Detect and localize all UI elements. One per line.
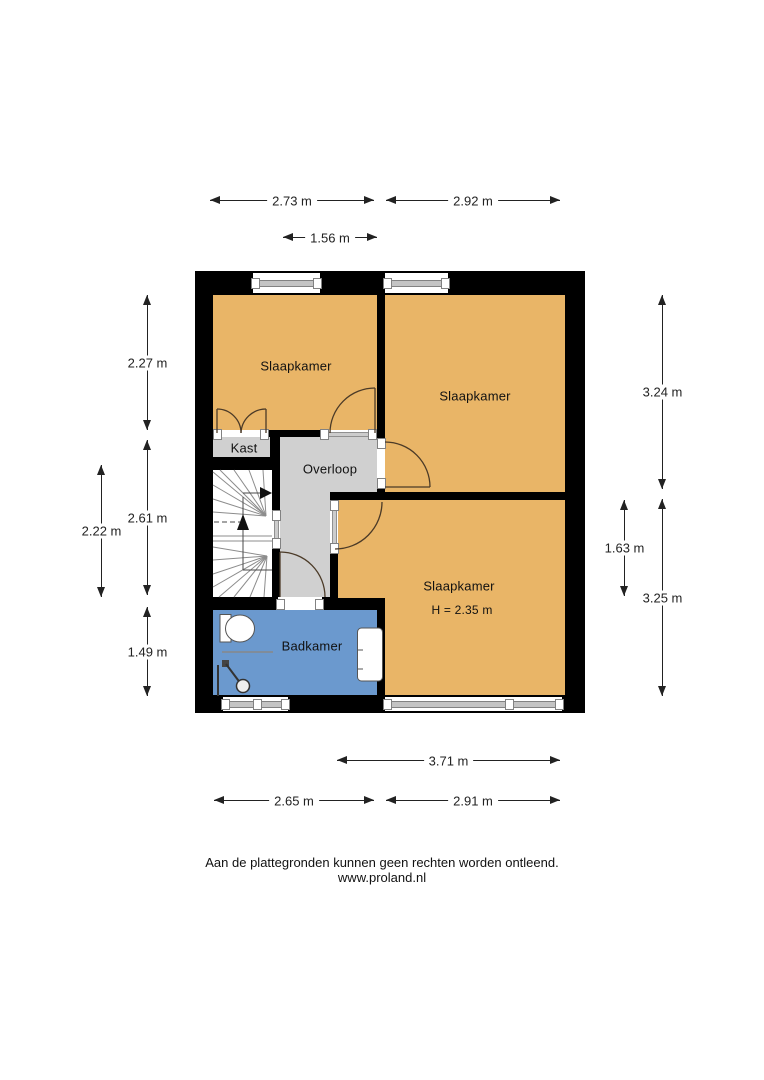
dimension-label: 2.27 m <box>123 355 173 370</box>
arrow-left-icon <box>386 196 396 204</box>
arrow-up-icon <box>658 295 666 305</box>
room-height-note: H = 2.35 m <box>431 603 492 617</box>
arrow-up-icon <box>143 295 151 305</box>
arrow-left-icon <box>337 756 347 764</box>
arrow-down-icon <box>620 586 628 596</box>
arrow-up-icon <box>97 465 105 475</box>
dimension-label: 2.65 m <box>269 793 319 808</box>
arrow-down-icon <box>97 587 105 597</box>
arrow-right-icon <box>367 233 377 241</box>
door-post <box>272 538 281 549</box>
footer: Aan de plattegronden kunnen geen rechten… <box>0 855 764 885</box>
arrow-up-icon <box>658 499 666 509</box>
window-post <box>313 278 322 289</box>
dimension-label: 3.25 m <box>638 590 688 605</box>
room-label-slaapkamer-top-left: Slaapkamer <box>260 359 331 374</box>
dimension-bottom-bedroom-height: 3.25 m <box>662 499 663 696</box>
arrow-down-icon <box>143 420 151 430</box>
door-post <box>276 599 285 610</box>
dimension-right-bedroom-height: 3.24 m <box>662 295 663 489</box>
arrow-right-icon <box>364 796 374 804</box>
door-opening-badkamer <box>278 597 322 610</box>
dimension-bottom-left-width: 2.65 m <box>214 800 374 801</box>
window-glass <box>385 701 562 708</box>
window-bathroom <box>223 697 288 711</box>
dimension-left-middle-height: 2.61 m <box>147 440 148 595</box>
disclaimer-text: Aan de plattegronden kunnen geen rechten… <box>0 855 764 870</box>
window-post <box>441 278 450 289</box>
arrow-down-icon <box>143 585 151 595</box>
door-post <box>377 438 386 449</box>
window-post <box>555 699 564 710</box>
door-opening-bedroom-top-right <box>377 440 385 487</box>
dimension-bedroom-upper-height: 1.63 m <box>624 500 625 596</box>
room-label-overloop: Overloop <box>303 462 357 477</box>
arrow-down-icon <box>143 686 151 696</box>
arrow-up-icon <box>143 607 151 617</box>
dimension-label: 1.56 m <box>305 230 355 245</box>
door-post <box>213 429 222 440</box>
dimension-stairwell-height: 2.22 m <box>101 465 102 597</box>
door-opening-bedroom-bottom-right <box>330 502 338 552</box>
floorplan-page: Slaapkamer Slaapkamer Slaapkamer H = 2.3… <box>0 0 764 1080</box>
dimension-badkamer-height: 1.49 m <box>147 607 148 696</box>
window-post <box>383 699 392 710</box>
arrow-left-icon <box>210 196 220 204</box>
window-glass <box>253 280 320 287</box>
door-post <box>320 429 329 440</box>
arrow-down-icon <box>658 686 666 696</box>
door-post <box>377 478 386 489</box>
dimension-overloop-width: 1.56 m <box>283 237 377 238</box>
stair-top-opening <box>272 512 280 547</box>
dimension-left-bedroom-height: 2.27 m <box>147 295 148 430</box>
dimension-label: 3.71 m <box>424 753 474 768</box>
arrow-left-icon <box>283 233 293 241</box>
window-glass <box>385 280 448 287</box>
window-post <box>281 699 290 710</box>
arrow-right-icon <box>550 196 560 204</box>
arrow-right-icon <box>550 756 560 764</box>
arrow-left-icon <box>214 796 224 804</box>
room-label-slaapkamer-top-right: Slaapkamer <box>439 389 510 404</box>
window-top-left <box>253 273 320 293</box>
arrow-left-icon <box>386 796 396 804</box>
room-label-slaapkamer-bottom-right: Slaapkamer <box>423 579 494 594</box>
dimension-label: 2.91 m <box>448 793 498 808</box>
dimension-top-right-width: 2.92 m <box>386 200 560 201</box>
arrow-right-icon <box>364 196 374 204</box>
door-opening-bedroom-top-left <box>322 430 375 437</box>
dimension-bottom-bedroom-width: 3.71 m <box>337 760 560 761</box>
dimension-top-left-width: 2.73 m <box>210 200 374 201</box>
door-post <box>272 510 281 521</box>
room-label-badkamer: Badkamer <box>282 639 343 654</box>
door-opening-closet <box>215 430 267 437</box>
window-post <box>383 278 392 289</box>
room-stairwell <box>213 470 272 597</box>
window-post <box>251 278 260 289</box>
window-post <box>221 699 230 710</box>
arrow-up-icon <box>143 440 151 450</box>
door-post <box>368 429 377 440</box>
door-post <box>330 543 339 554</box>
door-post <box>260 429 269 440</box>
arrow-up-icon <box>620 500 628 510</box>
dimension-label: 2.61 m <box>123 510 173 525</box>
arrow-down-icon <box>658 479 666 489</box>
dimension-label: 2.73 m <box>267 193 317 208</box>
window-post <box>505 699 514 710</box>
window-top-right <box>385 273 448 293</box>
window-bottom-bedroom <box>385 697 562 711</box>
room-overloop-lower <box>280 492 330 597</box>
door-post <box>315 599 324 610</box>
room-label-kast: Kast <box>231 441 258 456</box>
arrow-right-icon <box>550 796 560 804</box>
dimension-label: 2.92 m <box>448 193 498 208</box>
dimension-label: 1.63 m <box>600 541 650 556</box>
dimension-label: 1.49 m <box>123 644 173 659</box>
dimension-label: 2.22 m <box>77 524 127 539</box>
dimension-label: 3.24 m <box>638 385 688 400</box>
window-post <box>253 699 262 710</box>
door-post <box>330 500 339 511</box>
dimension-bottom-right-width: 2.91 m <box>386 800 560 801</box>
website-text: www.proland.nl <box>0 870 764 885</box>
